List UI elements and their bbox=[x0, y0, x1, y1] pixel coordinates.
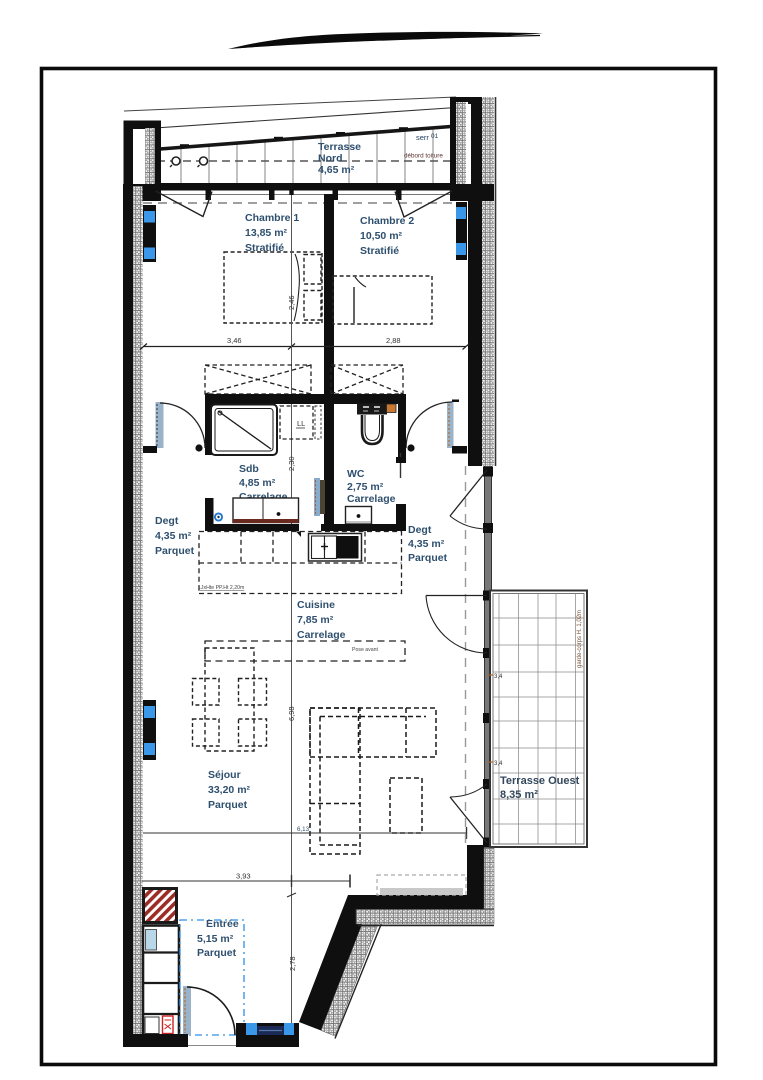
svg-text:Parquet: Parquet bbox=[155, 545, 195, 557]
svg-text:WC: WC bbox=[347, 468, 365, 480]
svg-text:Terrasse Ouest: Terrasse Ouest bbox=[500, 775, 580, 787]
svg-text:garde-corps H. 1,02m: garde-corps H. 1,02m bbox=[577, 610, 583, 668]
svg-text:4,35 m²: 4,35 m² bbox=[408, 538, 445, 550]
svg-text:Chambre 2: Chambre 2 bbox=[360, 215, 414, 227]
svg-text:débord toiture: débord toiture bbox=[404, 153, 443, 160]
svg-text:33,20 m²: 33,20 m² bbox=[208, 784, 251, 796]
svg-text:Séjour: Séjour bbox=[208, 769, 241, 781]
svg-text:Carrelage: Carrelage bbox=[297, 629, 346, 641]
svg-text:2,30: 2,30 bbox=[287, 456, 296, 471]
svg-text:2,46: 2,46 bbox=[287, 295, 296, 310]
svg-text:Entrée: Entrée bbox=[206, 918, 239, 930]
svg-text:4,35 m²: 4,35 m² bbox=[155, 530, 192, 542]
svg-text:3,4: 3,4 bbox=[494, 761, 503, 767]
svg-text:Parquet: Parquet bbox=[208, 799, 248, 811]
svg-text:10,50 m²: 10,50 m² bbox=[360, 230, 403, 242]
svg-text:4,65 m²: 4,65 m² bbox=[318, 164, 355, 176]
svg-text:6,13: 6,13 bbox=[297, 826, 310, 833]
svg-text:Cuisine: Cuisine bbox=[297, 599, 335, 611]
svg-text:3,46: 3,46 bbox=[227, 336, 242, 345]
svg-text:2,88: 2,88 bbox=[386, 336, 401, 345]
svg-text:Pose avant: Pose avant bbox=[352, 647, 379, 653]
svg-text:Terrasse: Terrasse bbox=[318, 141, 361, 153]
svg-text:2,75 m²: 2,75 m² bbox=[347, 481, 384, 493]
svg-text:Parquet: Parquet bbox=[408, 552, 448, 564]
svg-text:Degt: Degt bbox=[408, 524, 432, 536]
svg-text:Stratifié: Stratifié bbox=[360, 245, 399, 257]
svg-text:3,93: 3,93 bbox=[236, 872, 251, 881]
svg-text:Parquet: Parquet bbox=[197, 947, 237, 959]
svg-text:2,78: 2,78 bbox=[288, 956, 297, 971]
svg-text:Carrelage: Carrelage bbox=[347, 493, 396, 505]
svg-text:LJxHte PP.Ht 2,20m: LJxHte PP.Ht 2,20m bbox=[198, 585, 244, 591]
svg-text:8,35 m²: 8,35 m² bbox=[500, 789, 538, 801]
svg-text:13,85 m²: 13,85 m² bbox=[245, 227, 288, 239]
svg-text:5,15 m²: 5,15 m² bbox=[197, 933, 234, 945]
svg-text:6,98: 6,98 bbox=[287, 706, 296, 721]
svg-text:Degt: Degt bbox=[155, 515, 179, 527]
svg-text:LL: LL bbox=[297, 419, 305, 428]
svg-text:4,85 m²: 4,85 m² bbox=[239, 477, 276, 489]
svg-text:3,4: 3,4 bbox=[494, 674, 503, 680]
svg-text:Sdb: Sdb bbox=[239, 463, 259, 475]
svg-text:7,85 m²: 7,85 m² bbox=[297, 614, 334, 626]
svg-text:Nord: Nord bbox=[318, 153, 343, 165]
